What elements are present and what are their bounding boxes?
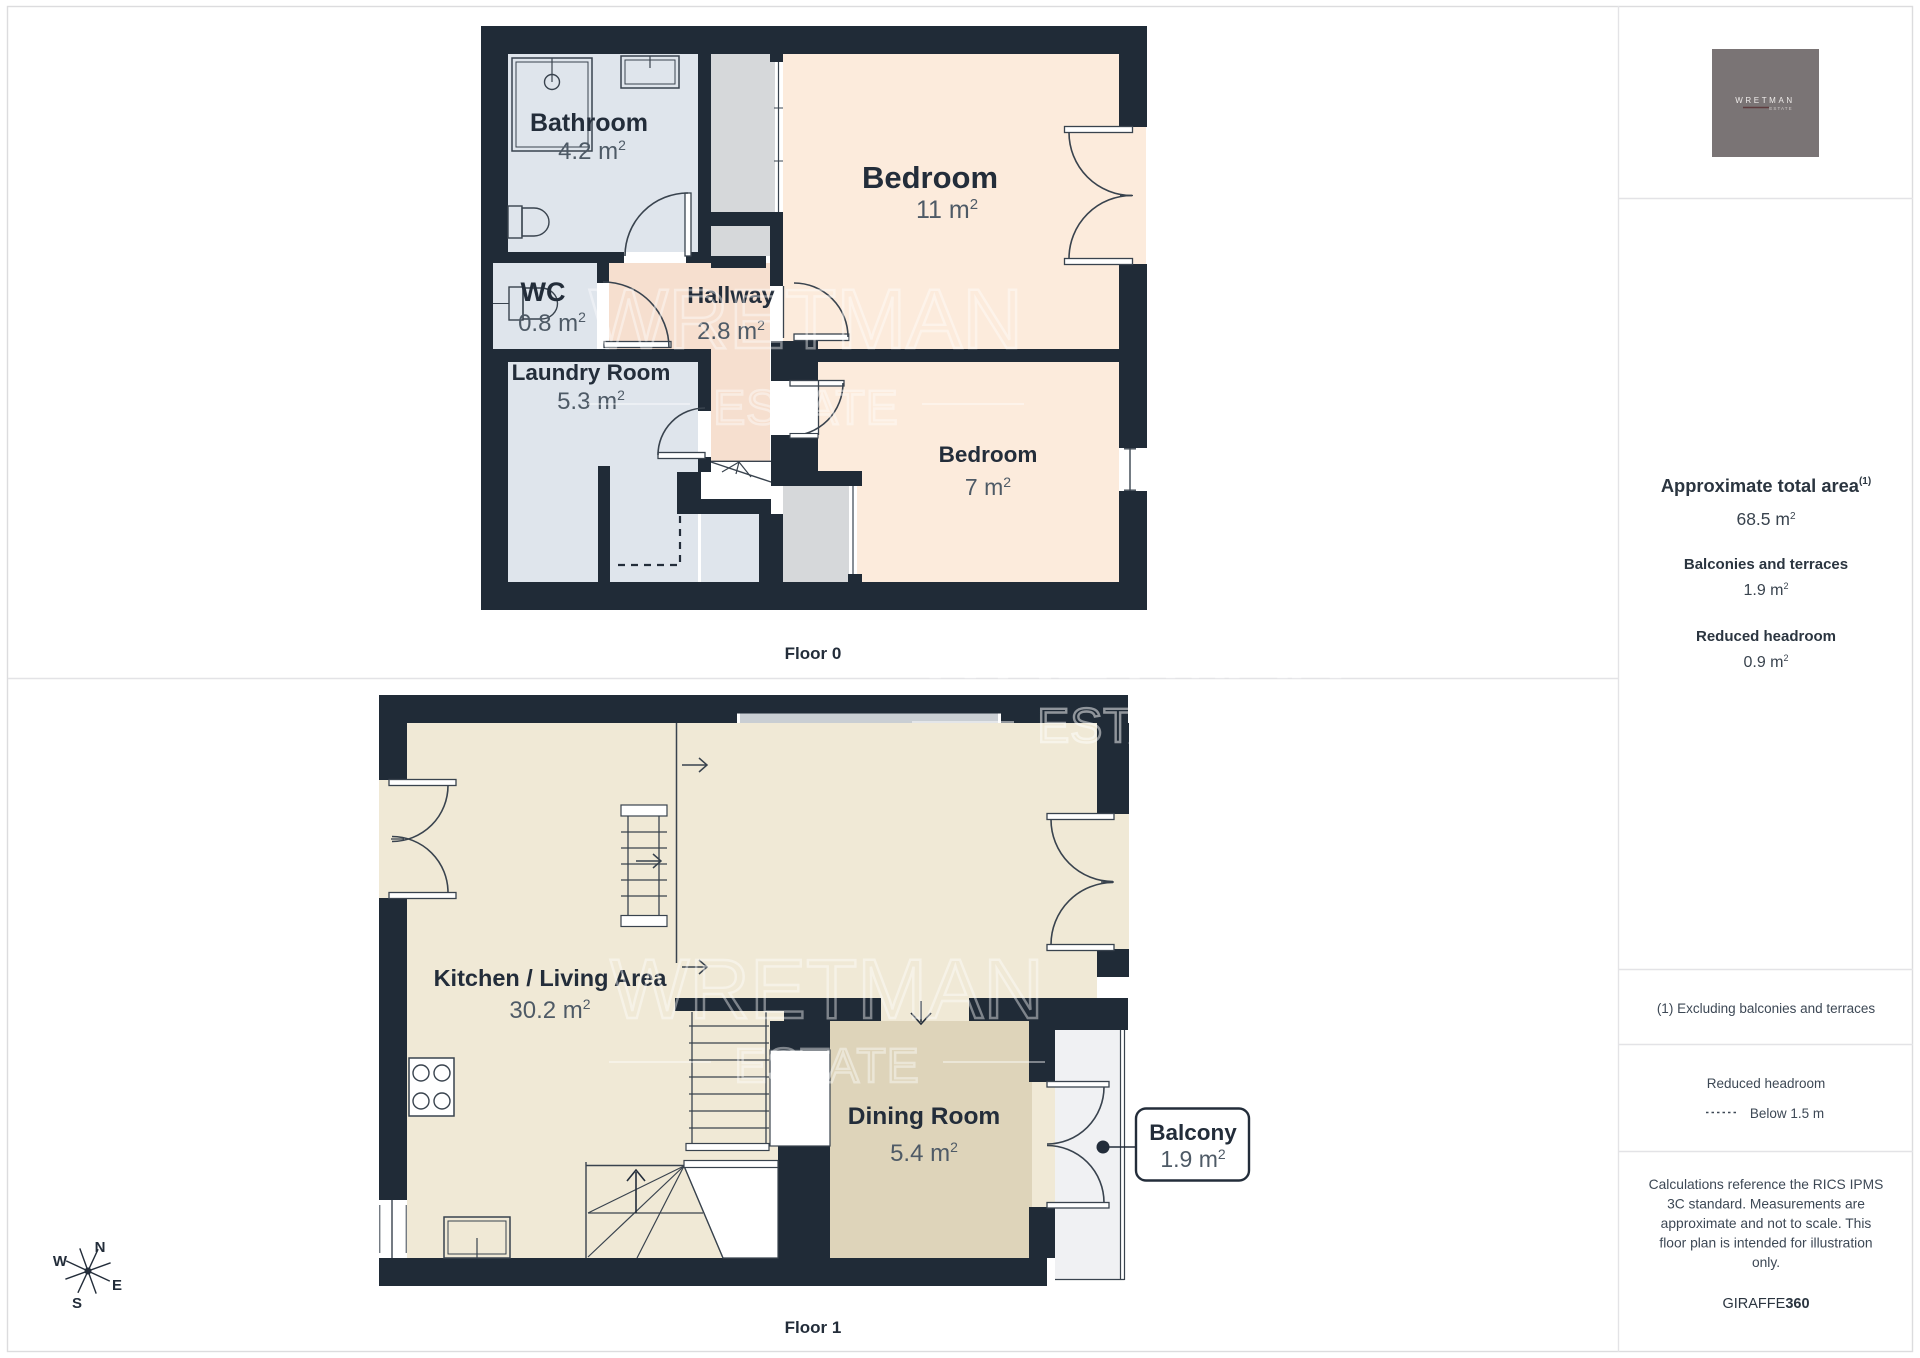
svg-text:Floor 0: Floor 0: [785, 644, 842, 663]
svg-text:WRETMAN: WRETMAN: [610, 942, 1044, 1036]
svg-text:Reduced headroom: Reduced headroom: [1707, 1076, 1826, 1091]
svg-text:WRETMAN: WRETMAN: [1735, 96, 1795, 105]
svg-text:ESTATE: ESTATE: [1769, 106, 1792, 111]
svg-text:1.9 m2: 1.9 m2: [1743, 581, 1788, 599]
svg-text:Below 1.5 m: Below 1.5 m: [1750, 1106, 1824, 1121]
svg-text:5.4 m2: 5.4 m2: [890, 1139, 958, 1167]
svg-text:Floor 1: Floor 1: [785, 1318, 842, 1337]
svg-text:0.8 m2: 0.8 m2: [518, 309, 586, 337]
svg-text:only.: only.: [1752, 1255, 1780, 1270]
svg-text:11 m2: 11 m2: [916, 196, 978, 224]
svg-text:WRETMAN: WRETMAN: [589, 272, 1023, 366]
svg-text:30.2 m2: 30.2 m2: [509, 996, 590, 1024]
svg-text:GIRAFFE360: GIRAFFE360: [1722, 1296, 1809, 1312]
svg-text:Calculations reference the RIC: Calculations reference the RICS IPMS: [1649, 1177, 1884, 1192]
svg-text:3C standard. Measurements are: 3C standard. Measurements are: [1667, 1197, 1865, 1212]
svg-text:ESTATE: ESTATE: [734, 1040, 920, 1093]
svg-text:0.9 m2: 0.9 m2: [1743, 653, 1788, 671]
svg-text:approximate and not to scale.: approximate and not to scale. This: [1661, 1216, 1872, 1231]
svg-text:Approximate total area(1): Approximate total area(1): [1661, 475, 1871, 496]
svg-text:Dining Room: Dining Room: [848, 1103, 1000, 1130]
svg-text:5.3 m2: 5.3 m2: [557, 387, 625, 415]
svg-text:Balcony: Balcony: [1149, 1120, 1237, 1145]
svg-text:1.9 m2: 1.9 m2: [1160, 1146, 1226, 1172]
svg-text:68.5 m2: 68.5 m2: [1736, 509, 1796, 529]
svg-text:Bedroom: Bedroom: [862, 160, 998, 195]
svg-text:WC: WC: [521, 277, 566, 307]
svg-text:4.2 m2: 4.2 m2: [558, 137, 626, 165]
svg-text:W: W: [53, 1253, 68, 1270]
svg-text:E: E: [112, 1277, 122, 1294]
svg-text:N: N: [95, 1239, 106, 1256]
svg-text:Bedroom: Bedroom: [939, 442, 1038, 467]
svg-text:S: S: [72, 1295, 82, 1312]
svg-text:Bathroom: Bathroom: [530, 109, 648, 137]
svg-text:WRETMAN: WRETMAN: [913, 601, 1347, 695]
svg-text:ESTATE: ESTATE: [713, 382, 899, 435]
svg-text:Reduced headroom: Reduced headroom: [1696, 628, 1836, 645]
svg-text:floor plan is intended for ill: floor plan is intended for illustration: [1659, 1236, 1872, 1251]
svg-text:(1) Excluding balconies and te: (1) Excluding balconies and terraces: [1657, 1001, 1876, 1016]
svg-text:ESTATE: ESTATE: [1037, 700, 1223, 753]
svg-text:Balconies and terraces: Balconies and terraces: [1684, 556, 1848, 573]
